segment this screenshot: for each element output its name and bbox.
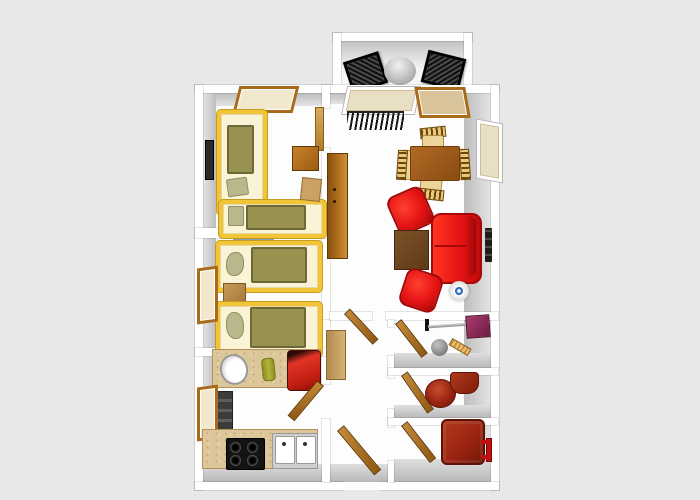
living-window-top — [342, 87, 420, 114]
hallway-cabinet — [326, 330, 346, 380]
bedroom1-wall-mirror — [205, 140, 214, 180]
living-radiator — [347, 111, 404, 130]
dining-chair-left — [396, 150, 408, 181]
wall-hall-rightrooms-seg4 — [388, 461, 394, 482]
living-coffee-table — [394, 230, 429, 270]
kitchen-sink-left-drain — [282, 442, 286, 446]
bedroom1-open-door — [315, 107, 324, 151]
dining-table — [410, 146, 460, 181]
entrance-doorway-gap — [343, 482, 380, 490]
bedroom1-small-cabinet — [300, 177, 322, 202]
bedroom1-bed-horizontal-pillow — [228, 206, 244, 226]
kitchen-sink-right-drain — [303, 442, 307, 446]
bedroom1-bed-vertical-blanket — [227, 125, 254, 174]
bedroom1-bed-vertical-pillow — [226, 177, 249, 198]
bathtub — [441, 419, 485, 465]
storage-ball — [431, 339, 448, 356]
living-floor-lamp-center — [455, 287, 463, 295]
floor-plan-image — [0, 0, 700, 500]
dining-chair-right — [459, 149, 471, 181]
balcony-round-table — [384, 57, 416, 85]
bedroom1-nightstand — [292, 146, 319, 171]
bathtub-rail-bottom-bracket — [481, 455, 488, 459]
kitchen-bottle — [261, 357, 276, 381]
bathtub-rail-top-bracket — [481, 440, 488, 444]
cooktop-burner-2 — [247, 442, 258, 453]
living-radiator-right — [485, 228, 492, 262]
balcony-wall-top — [333, 33, 472, 41]
mop-head — [465, 314, 491, 339]
wall-hall-rightrooms-seg1 — [388, 320, 394, 327]
wall-kitchen-hall-seg2 — [322, 419, 330, 482]
living-window-right — [477, 120, 502, 182]
bedroom2-bed-lower-blanket — [250, 307, 306, 348]
cooktop-burner-4 — [247, 455, 258, 466]
wc-toilet — [450, 372, 479, 394]
living-sofa-backrest — [466, 216, 476, 277]
bedroom1-bed-horizontal-blanket — [246, 205, 306, 230]
bedroom2-bed-lower-pillow — [226, 312, 244, 339]
wall-bedrooms-living-seg1 — [322, 85, 330, 108]
living-sofa-cushion-divider — [434, 245, 468, 247]
kitchen-sink-right — [296, 436, 316, 464]
balcony-door — [414, 87, 470, 118]
cooktop-burner-1 — [230, 442, 241, 453]
outer-wall-bottom-left-segment — [195, 482, 343, 490]
bedroom2-window — [197, 266, 218, 325]
bedroom2-bed-upper-pillow — [226, 252, 244, 276]
living-wardrobe — [327, 153, 348, 259]
kitchen-sink-left — [275, 436, 295, 464]
kitchen-cooktop — [226, 438, 265, 470]
outer-wall-bottom-right-segment — [380, 482, 499, 490]
living-wardrobe-knob-2 — [333, 200, 336, 203]
living-wardrobe-knob-1 — [333, 188, 336, 191]
bedroom2-bed-upper-blanket — [251, 247, 307, 283]
cooktop-burner-3 — [230, 455, 241, 466]
balcony-wall-left — [333, 33, 341, 90]
bedroom1-window — [233, 86, 300, 113]
